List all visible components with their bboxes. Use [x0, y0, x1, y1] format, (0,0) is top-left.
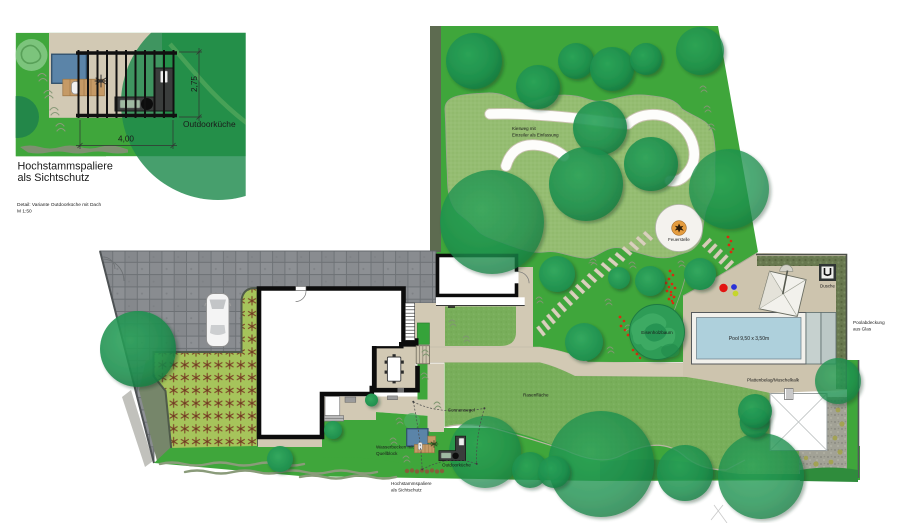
- svg-text:M 1:50: M 1:50: [17, 209, 32, 215]
- svg-text:Hochstammspaliere: Hochstammspaliere: [391, 481, 432, 486]
- svg-text:als Sichtschutz: als Sichtschutz: [391, 488, 422, 493]
- svg-text:Rasenfläche: Rasenfläche: [523, 393, 549, 398]
- svg-text:Kiesweg mit: Kiesweg mit: [512, 126, 536, 131]
- svg-text:Detail: Variante Outdoorküche: Detail: Variante Outdoorküche mit Dach: [17, 202, 101, 208]
- svg-text:Plattenbelag/Muschelkalk: Plattenbelag/Muschelkalk: [747, 378, 800, 383]
- svg-text:Quellblock: Quellblock: [376, 451, 398, 456]
- svg-text:Sonnensegel: Sonnensegel: [448, 408, 475, 413]
- svg-text:Einzeiler als Einfassung: Einzeiler als Einfassung: [512, 133, 559, 138]
- svg-text:Eisenholzbaum: Eisenholzbaum: [641, 330, 673, 335]
- svg-text:2,75: 2,75: [190, 76, 199, 92]
- svg-text:Feuerstelle: Feuerstelle: [668, 237, 690, 242]
- svg-text:4,00: 4,00: [118, 135, 134, 144]
- svg-text:als Sichtschutz: als Sichtschutz: [18, 172, 90, 184]
- svg-text:Outdoorküche: Outdoorküche: [183, 119, 236, 129]
- svg-text:Dusche: Dusche: [820, 284, 835, 289]
- svg-text:Pool 9,50 x 3,50m: Pool 9,50 x 3,50m: [729, 336, 769, 342]
- svg-text:Outdoorküche: Outdoorküche: [442, 463, 471, 468]
- svg-text:Hochstammspaliere: Hochstammspaliere: [18, 161, 113, 173]
- svg-text:Poolabdeckung: Poolabdeckung: [853, 320, 885, 325]
- svg-text:Wasserbecken mit: Wasserbecken mit: [376, 445, 414, 450]
- svg-text:aus Glas: aus Glas: [853, 327, 872, 332]
